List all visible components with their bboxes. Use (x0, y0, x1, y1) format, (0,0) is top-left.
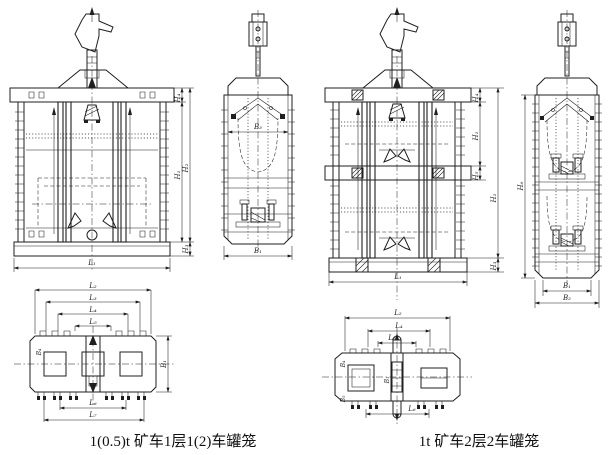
cage-drawing-svg: H₄ H₁ H₂ H₃ L₁ B₃ (0, 0, 610, 455)
right-plan-dimensions: L₂ L₄ L₅ L₆ (345, 309, 450, 418)
top-beam (325, 88, 471, 102)
dim-label-b1-center: B₁ (384, 377, 391, 385)
dim-label-l1: L₁ (393, 273, 402, 281)
right-side-view: H₆ B₁ B₂ (517, 10, 602, 308)
dim-label-b3: B₃ (253, 123, 262, 131)
dim-label-h1: H₁ (472, 131, 480, 141)
dim-label-h5: H₅ (472, 171, 480, 181)
caption-left: 1(0.5)t 矿车1层1(2)车罐笼 (90, 433, 257, 450)
dim-label-l2: L₂ (88, 282, 97, 290)
suspension-hook (380, 7, 418, 88)
caption-right: 1t 矿车2层2车罐笼 (419, 433, 539, 450)
dim-label-l2: L₂ (393, 309, 402, 317)
left-front-view: H₄ H₁ H₂ H₃ L₁ (10, 7, 194, 272)
dim-label-b4: B₄ (36, 348, 43, 356)
dim-label-l5: L₅ (88, 318, 97, 326)
drawing-canvas: H₄ H₁ H₂ H₃ L₁ B₃ (0, 0, 610, 455)
dim-label-l4: L₄ (88, 306, 97, 314)
dim-label-b4: B₄ (340, 360, 347, 368)
right-plan-view: B₄ B₅ B₁ L₂ L₄ L₅ L₆ (322, 309, 472, 424)
base-pads (356, 258, 440, 272)
left-side-dimensions: B₁ (224, 246, 292, 260)
right-front-dimensions: H₄ H₁ H₅ H₂ H₃ L₁ (329, 88, 504, 286)
dim-label-h6: H₆ (517, 181, 525, 191)
left-plan-view: B₄ L₂ L₃ L₄ L₅ L₆ L₇ B₁ (14, 282, 174, 422)
dim-label-l1: L₁ (87, 259, 96, 267)
dim-label-b2: B₂ (562, 294, 571, 302)
dim-label-l6: L₆ (407, 405, 416, 413)
cage-base (329, 258, 467, 272)
dim-label-l3: L₃ (88, 294, 97, 302)
dim-label-b1-plan: B₁ (160, 360, 168, 369)
right-front-view: H₄ H₁ H₅ H₂ H₃ L₁ (325, 7, 504, 300)
dim-label-h3: H₃ (182, 244, 190, 254)
dim-label-h1: H₁ (174, 170, 182, 180)
left-side-view: B₃ B₁ (221, 10, 295, 260)
dim-label-l5: L₅ (387, 334, 396, 342)
dim-label-b1: B₁ (253, 247, 262, 255)
suspension-hook (75, 7, 113, 88)
dim-label-h2: H₂ (182, 163, 190, 173)
dim-label-h2: H₂ (490, 193, 498, 203)
left-front-dimensions: H₄ H₁ H₂ H₃ L₁ (14, 88, 194, 272)
mid-deck-beam (325, 166, 471, 180)
dim-label-b1: B₁ (562, 282, 571, 290)
top-beam-pads (352, 90, 444, 100)
dim-label-h3: H₃ (490, 261, 498, 271)
dim-label-b5: B₅ (340, 395, 347, 403)
dim-label-l6: L₆ (88, 399, 97, 407)
dim-label-h4: H₄ (174, 93, 182, 103)
dim-label-l4: L₄ (394, 322, 403, 330)
dim-label-l7: L₇ (88, 411, 97, 419)
dim-label-h4: H₄ (472, 93, 480, 103)
